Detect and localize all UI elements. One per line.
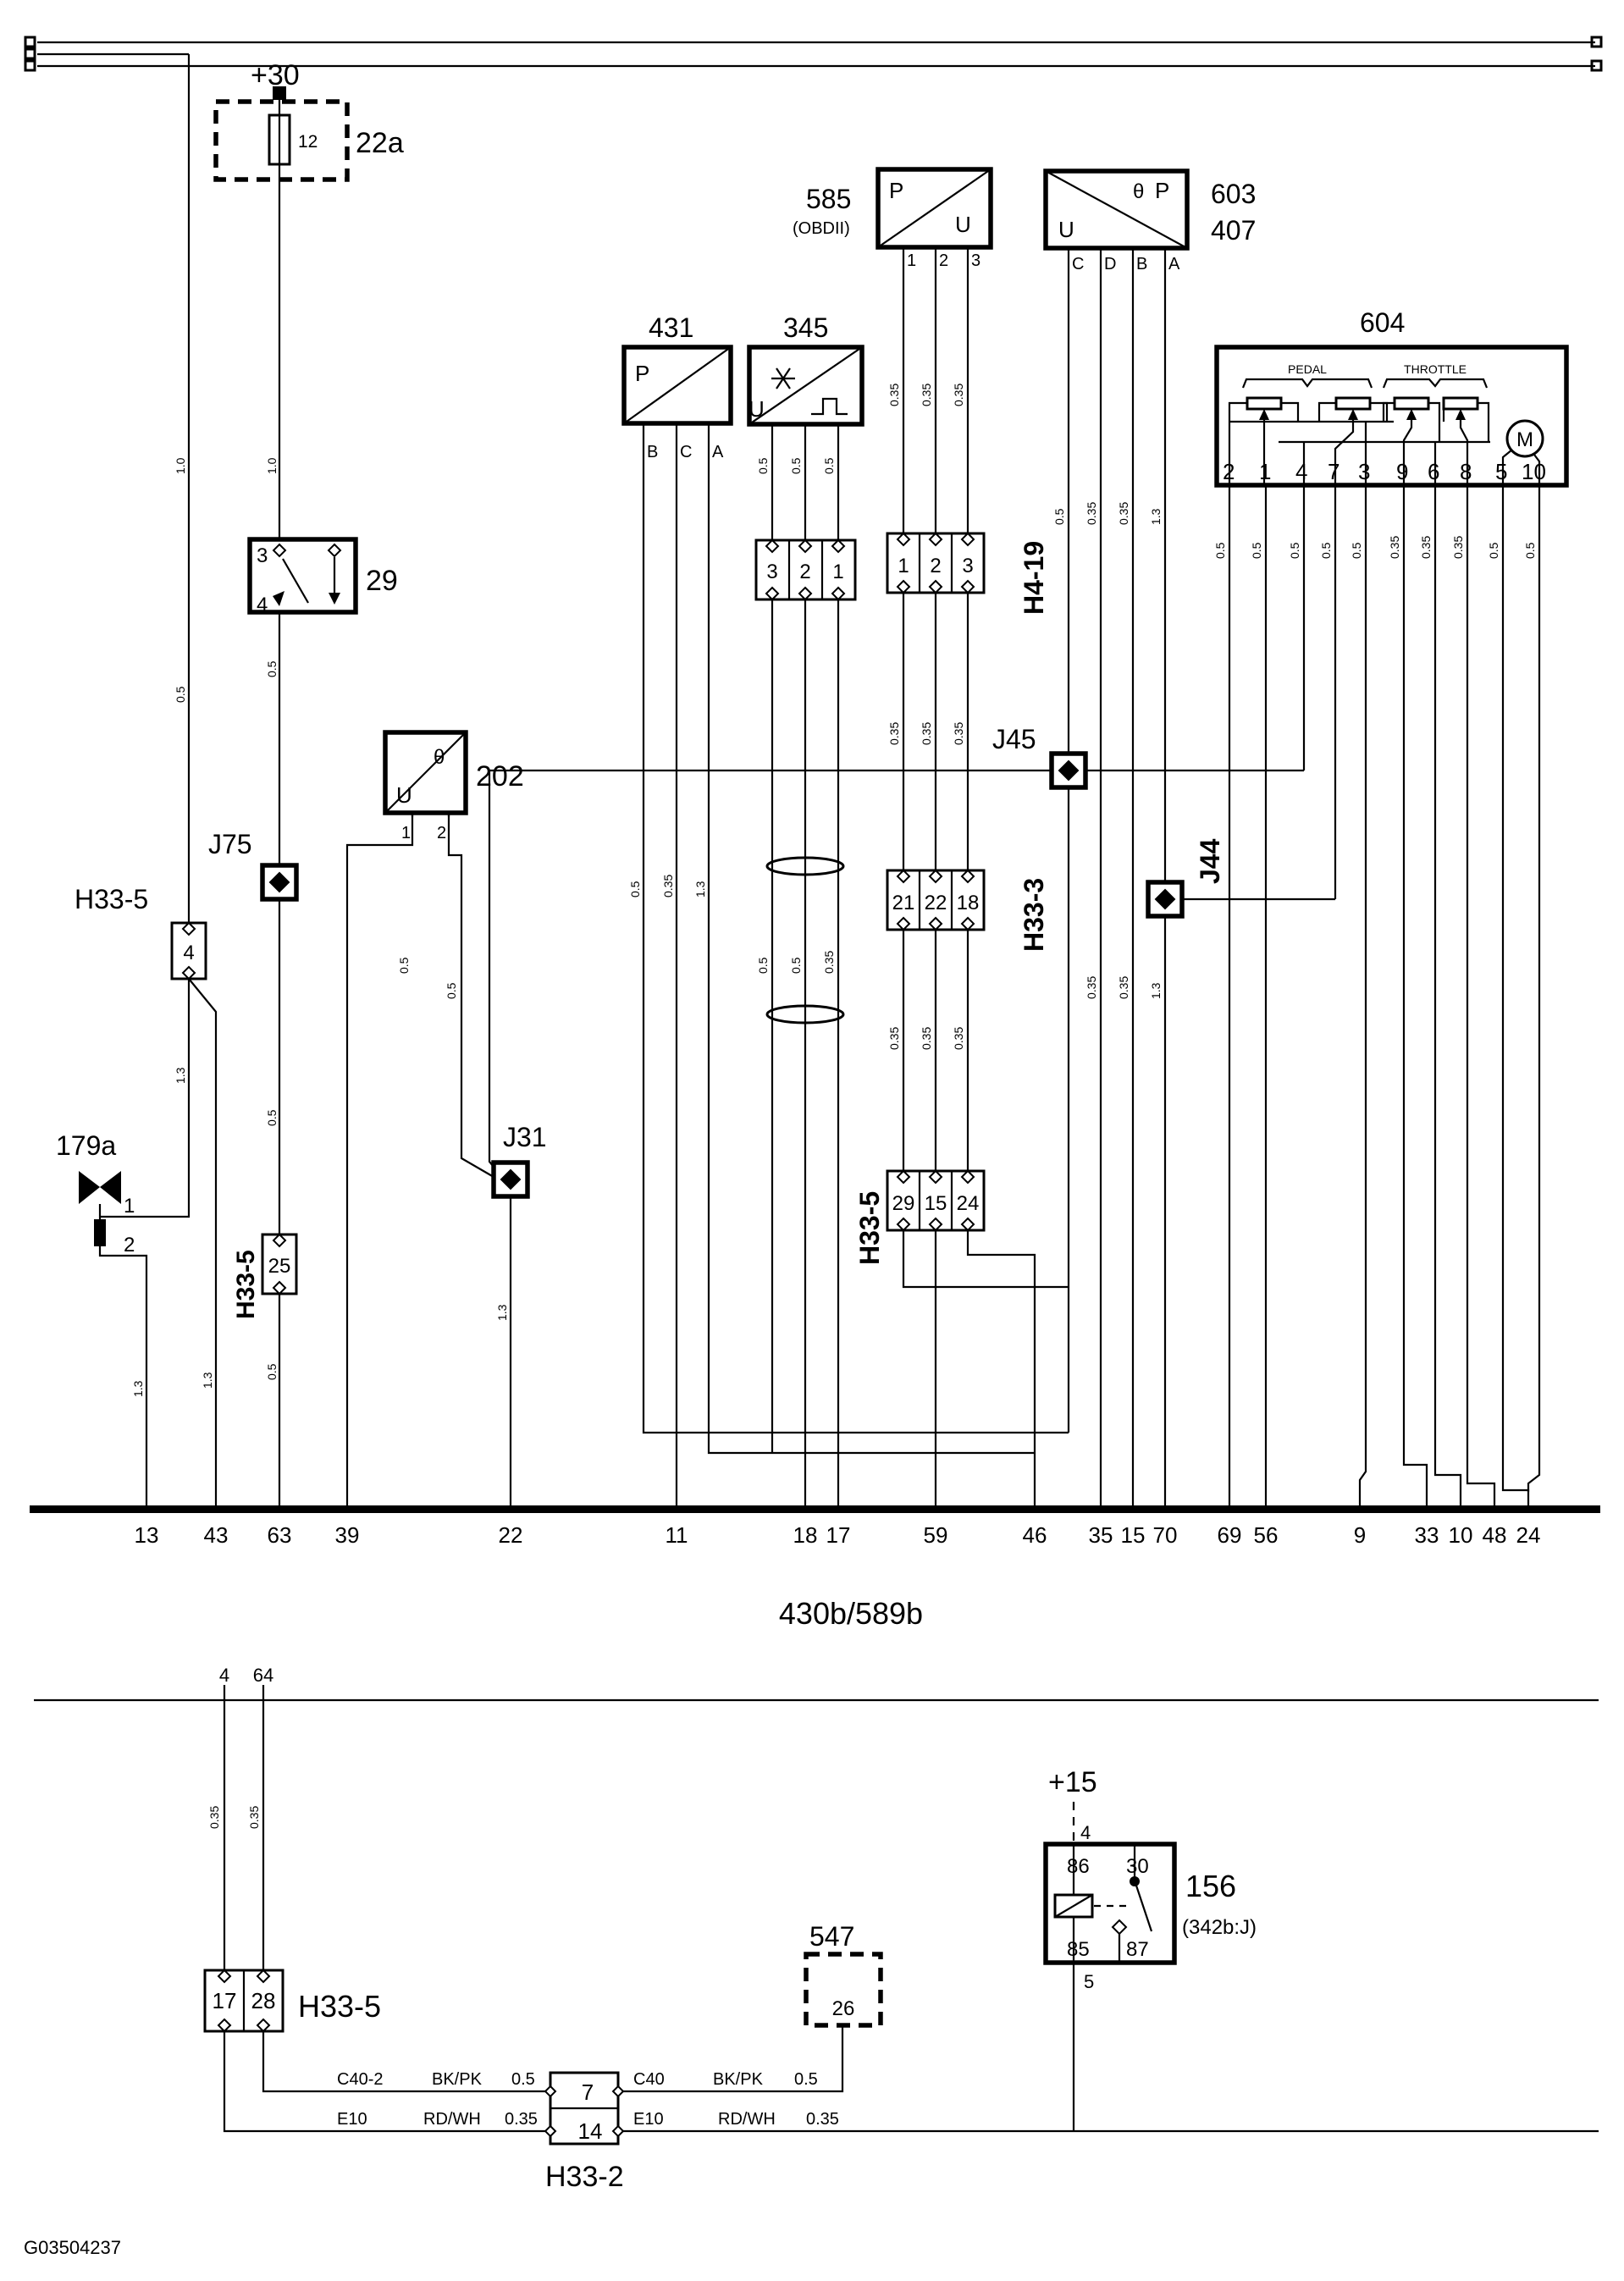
bus-pin-69: 69 bbox=[1218, 1522, 1242, 1548]
wiring-diagram-page: +301222a2934202Uθ12J75H33-54179a12H33-52… bbox=[0, 0, 1624, 2281]
relay-29-pin4: 4 bbox=[257, 594, 268, 616]
bus-pin-48: 48 bbox=[1483, 1522, 1507, 1548]
j44-label: J44 bbox=[1195, 838, 1225, 884]
h33-2-label: H33-2 bbox=[545, 2161, 624, 2193]
wire-gauge-label: 0.5 bbox=[1288, 542, 1301, 559]
wire-gauge-label: 0.5 bbox=[756, 957, 770, 974]
block-345-pin2: 2 bbox=[799, 561, 810, 583]
wire-c40-2-gauge: 0.5 bbox=[511, 2070, 535, 2089]
valve-pin2: 2 bbox=[124, 1234, 135, 1256]
wire-c40: C40 bbox=[633, 2070, 665, 2089]
unit-547-label: 547 bbox=[809, 1921, 854, 1952]
pedal-label: PEDAL bbox=[1288, 362, 1327, 376]
wire-gauge-label: 1.3 bbox=[131, 1380, 145, 1397]
junction-j45 bbox=[1052, 754, 1085, 787]
relay-156-pin30: 30 bbox=[1126, 1855, 1149, 1878]
sensor-603-u: U bbox=[1058, 217, 1074, 242]
wire-gauge-label: 0.5 bbox=[1052, 508, 1066, 525]
terminal-30-label: +30 bbox=[251, 59, 300, 91]
bus-pin-63: 63 bbox=[268, 1522, 292, 1548]
lower-rail bbox=[34, 1685, 1599, 1700]
wire-c40-color: BK/PK bbox=[713, 2070, 764, 2089]
bus-pin-59: 59 bbox=[924, 1522, 948, 1548]
junction-j31 bbox=[494, 1163, 528, 1196]
bus-pin-35: 35 bbox=[1089, 1522, 1113, 1548]
h33-3-pin22: 22 bbox=[925, 892, 947, 914]
wire-gauge-label: 1.0 bbox=[174, 457, 187, 474]
h33-3-label: H33-3 bbox=[1019, 878, 1049, 952]
wire-gauge-label: 0.5 bbox=[789, 957, 803, 974]
relay-29-label: 29 bbox=[366, 565, 398, 597]
wire-gauge-label: 0.5 bbox=[265, 1109, 279, 1126]
wire-e10b-gauge: 0.35 bbox=[806, 2110, 839, 2129]
sensor-585-pin3: 3 bbox=[971, 251, 980, 270]
bus-pin-39: 39 bbox=[335, 1522, 360, 1548]
wire-gauge-label: 0.35 bbox=[1085, 976, 1098, 999]
rail-pin-4: 4 bbox=[219, 1665, 229, 1686]
wire-gauge-label: 0.5 bbox=[1213, 542, 1227, 559]
wire-gauge-label: 0.5 bbox=[174, 686, 187, 703]
sensor-202-pin2: 2 bbox=[437, 824, 446, 842]
fuse-number: 12 bbox=[298, 132, 318, 152]
h33-5c-pin17: 17 bbox=[213, 1988, 237, 2013]
bus-pin-24: 24 bbox=[1516, 1522, 1541, 1548]
wire-gauge-label: 0.35 bbox=[920, 1027, 933, 1050]
valve-pin1: 1 bbox=[124, 1195, 135, 1218]
sensor-585-sub: (OBDII) bbox=[793, 219, 850, 238]
sensor-603-pinB: B bbox=[1136, 255, 1147, 273]
sensor-603-pinD: D bbox=[1104, 255, 1116, 273]
sensor-431-u: U bbox=[748, 396, 765, 422]
wires-main bbox=[100, 54, 1539, 1505]
wire-gauge-label: 0.35 bbox=[1117, 976, 1130, 999]
wire-gauge-label: 0.35 bbox=[247, 1806, 261, 1829]
wire-gauge-label: 0.35 bbox=[1388, 536, 1401, 559]
h33-2-pin14: 14 bbox=[578, 2118, 603, 2144]
wire-gauge-label: 1.3 bbox=[1149, 982, 1163, 999]
u604-pin4: 4 bbox=[1295, 459, 1307, 484]
bus-pin-15: 15 bbox=[1121, 1522, 1146, 1548]
wire-gauge-label: 0.35 bbox=[1117, 502, 1130, 525]
wire-gauge-label: 0.5 bbox=[628, 881, 642, 897]
sensor-585-label: 585 bbox=[806, 184, 851, 214]
rail-pin-64: 64 bbox=[253, 1665, 273, 1686]
sensor-585-pin2: 2 bbox=[939, 251, 948, 270]
wire-gauge-label: 0.35 bbox=[920, 384, 933, 406]
block-345-pin3: 3 bbox=[766, 561, 777, 583]
u604-pin6: 6 bbox=[1428, 459, 1439, 484]
relay-156-pin4: 4 bbox=[1080, 1822, 1091, 1843]
sensor-585-p: P bbox=[889, 178, 903, 203]
wire-gauge-label: 1.3 bbox=[201, 1372, 214, 1389]
sensor-603-p: P bbox=[1155, 178, 1169, 203]
snowflake-icon bbox=[771, 368, 795, 389]
sensor-202-u: U bbox=[396, 782, 412, 808]
wire-gauge-label: 0.35 bbox=[887, 384, 901, 406]
wire-gauge-label: 0.35 bbox=[887, 722, 901, 745]
u604-pin5: 5 bbox=[1495, 459, 1507, 484]
sensor-431-p: P bbox=[635, 361, 649, 386]
h4-19-pin2: 2 bbox=[930, 555, 941, 577]
wire-gauge-label: 0.35 bbox=[1419, 536, 1433, 559]
bus-pin-70: 70 bbox=[1153, 1522, 1178, 1548]
h33-5a-label: H33-5 bbox=[75, 884, 148, 914]
relay-156-pin5: 5 bbox=[1084, 1971, 1094, 1992]
sensor-431-pinA: A bbox=[712, 443, 724, 461]
h4-19-pin3: 3 bbox=[962, 555, 973, 577]
wire-gauge-label: 0.35 bbox=[661, 875, 675, 897]
h33-2-pin7: 7 bbox=[582, 2079, 594, 2105]
bus-pin-11: 11 bbox=[666, 1522, 688, 1548]
u604-pin1: 1 bbox=[1259, 459, 1271, 484]
wire-gauge-label: 0.35 bbox=[207, 1806, 221, 1829]
relay-switch-arm bbox=[1135, 1883, 1152, 1931]
wire-gauge-label: 0.5 bbox=[397, 957, 411, 974]
wire-gauge-label: 1.3 bbox=[495, 1304, 509, 1321]
wire-gauge-label: 0.5 bbox=[1487, 542, 1500, 559]
relay-156-pin85: 85 bbox=[1067, 1938, 1090, 1961]
u604-pin3: 3 bbox=[1358, 459, 1370, 484]
wire-gauge-label: 0.5 bbox=[789, 457, 803, 474]
u604-pin8: 8 bbox=[1460, 459, 1472, 484]
sensor-202-label: 202 bbox=[476, 760, 524, 793]
wire-c40-gauge: 0.5 bbox=[794, 2070, 818, 2089]
wire-gauge-label: 0.35 bbox=[1085, 502, 1098, 525]
wire-gauge-label: 0.35 bbox=[822, 951, 836, 974]
bus-pin-13: 13 bbox=[135, 1522, 159, 1548]
wire-gauge-label: 0.5 bbox=[1523, 542, 1537, 559]
bus-pin-22: 22 bbox=[499, 1522, 523, 1548]
sensor-431-pinB: B bbox=[647, 443, 658, 461]
relay-156 bbox=[1046, 1844, 1174, 1963]
wire-gauge-label: 1.3 bbox=[1149, 508, 1163, 525]
wire-gauge-label: 1.3 bbox=[693, 881, 707, 897]
wire-gauge-label: 0.35 bbox=[952, 384, 965, 406]
h33-5c-label: H33-5 bbox=[298, 1989, 381, 2024]
doc-number-label: G03504237 bbox=[24, 2237, 121, 2258]
junction-j44 bbox=[1148, 882, 1182, 916]
wire-gauge-label: 0.5 bbox=[1319, 542, 1333, 559]
wire-gauge-label: 1.0 bbox=[265, 457, 279, 474]
wire-e10a-gauge: 0.35 bbox=[505, 2110, 538, 2129]
unit-547-pin26: 26 bbox=[832, 1997, 855, 2020]
j31-label: J31 bbox=[503, 1122, 547, 1152]
sensor-603-theta: θ bbox=[1133, 180, 1144, 203]
sensor-202-pin1: 1 bbox=[401, 824, 411, 842]
bus-pin-10: 10 bbox=[1449, 1522, 1473, 1548]
sensor-345-label: 345 bbox=[783, 312, 828, 343]
wire-gauge-label: 0.5 bbox=[1350, 542, 1363, 559]
block-345-pin1: 1 bbox=[832, 561, 843, 583]
h33-3-pin18: 18 bbox=[957, 892, 980, 914]
wire-gauge-label: 0.5 bbox=[445, 982, 458, 999]
ground-bus-bar bbox=[30, 1505, 1600, 1513]
bus-pin-43: 43 bbox=[204, 1522, 229, 1548]
wire-gauge-label: 1.3 bbox=[174, 1067, 187, 1084]
relay-29-pin3: 3 bbox=[257, 544, 268, 567]
h33-5c-pin28: 28 bbox=[251, 1988, 276, 2013]
u604-pin7: 7 bbox=[1328, 459, 1340, 484]
h4-19-label: H4-19 bbox=[1019, 541, 1049, 615]
u604-pin10: 10 bbox=[1522, 459, 1546, 484]
h33-5b-pin29: 29 bbox=[892, 1192, 915, 1215]
wire-gauge-label: 0.35 bbox=[887, 1027, 901, 1050]
wiring-diagram: +301222a2934202Uθ12J75H33-54179a12H33-52… bbox=[0, 0, 1624, 2281]
wire-gauge-label: 0.5 bbox=[822, 457, 836, 474]
motor-m-label: M bbox=[1516, 428, 1533, 451]
throttle-label: THROTTLE bbox=[1404, 362, 1467, 376]
terminal-15-label: +15 bbox=[1048, 1766, 1097, 1798]
bus-pin-33: 33 bbox=[1415, 1522, 1439, 1548]
sensor-585-pin1: 1 bbox=[907, 251, 916, 270]
u604-pin9: 9 bbox=[1396, 459, 1408, 484]
wire-e10a: E10 bbox=[337, 2110, 367, 2129]
wire-gauge-label: 0.35 bbox=[920, 722, 933, 745]
wire-gauge-label: 0.35 bbox=[952, 722, 965, 745]
valve-179a-label: 179a bbox=[56, 1130, 116, 1161]
h33-5-25-label: H33-5 bbox=[232, 1250, 260, 1319]
wire-gauge-label: 0.5 bbox=[756, 457, 770, 474]
wire-e10b: E10 bbox=[633, 2110, 664, 2129]
wires-lower bbox=[224, 1700, 1599, 2131]
bus-pin-46: 46 bbox=[1023, 1522, 1047, 1548]
wire-c40-2: C40-2 bbox=[337, 2070, 383, 2089]
u604-pin2: 2 bbox=[1223, 459, 1235, 484]
j75-label: J75 bbox=[208, 829, 252, 859]
sensor-345 bbox=[749, 347, 862, 424]
h33-5b-pin15: 15 bbox=[925, 1192, 947, 1215]
bus-pin-18: 18 bbox=[793, 1522, 818, 1548]
sensor-431-label: 431 bbox=[649, 312, 693, 343]
sensor-202-theta: θ bbox=[434, 746, 445, 769]
wire-gauge-label: 0.5 bbox=[265, 1363, 279, 1380]
relay-156-pin87: 87 bbox=[1126, 1938, 1149, 1961]
h33-5b-pin24: 24 bbox=[957, 1192, 980, 1215]
sensor-431-pinC: C bbox=[680, 443, 692, 461]
h4-19-pin1: 1 bbox=[898, 555, 909, 577]
wire-gauge-label: 0.5 bbox=[265, 660, 279, 677]
wire-e10b-color: RD/WH bbox=[718, 2110, 776, 2129]
relay-156-pin86: 86 bbox=[1067, 1855, 1090, 1878]
junction-j75 bbox=[262, 865, 296, 899]
throttle-brace bbox=[1384, 379, 1487, 388]
sensor-603-label: 603 bbox=[1211, 179, 1256, 209]
relay-156-sub: (342b:J) bbox=[1182, 1916, 1257, 1939]
wire-c40-2-color: BK/PK bbox=[432, 2070, 483, 2089]
wire-gauge-label: 0.35 bbox=[1451, 536, 1465, 559]
sensor-603-pinC: C bbox=[1072, 255, 1084, 273]
relay-156-label: 156 bbox=[1185, 1869, 1236, 1903]
sensor-585-u: U bbox=[955, 212, 971, 237]
unit-604-label: 604 bbox=[1360, 307, 1405, 338]
fuse-22a bbox=[216, 102, 347, 179]
bus-pin-9: 9 bbox=[1354, 1522, 1366, 1548]
pedal-brace bbox=[1243, 379, 1372, 388]
j45-label: J45 bbox=[992, 724, 1036, 754]
section-label: 430b/589b bbox=[779, 1596, 923, 1631]
pulse-icon bbox=[811, 399, 848, 414]
wire-e10a-color: RD/WH bbox=[423, 2110, 481, 2129]
h33-3-pin21: 21 bbox=[892, 892, 915, 914]
h33-5a-pin4: 4 bbox=[183, 942, 194, 964]
bus-pin-56: 56 bbox=[1254, 1522, 1279, 1548]
sensor-603-pinA: A bbox=[1168, 255, 1180, 273]
sensor-407-label: 407 bbox=[1211, 215, 1256, 246]
wire-gauge-label: 0.35 bbox=[952, 1027, 965, 1050]
h33-5-25-pin: 25 bbox=[268, 1255, 291, 1278]
h33-5b-label: H33-5 bbox=[854, 1191, 885, 1265]
bus-pin-17: 17 bbox=[826, 1522, 851, 1548]
fuse-box-label: 22a bbox=[356, 127, 404, 159]
wire-gauge-label: 0.5 bbox=[1250, 542, 1263, 559]
